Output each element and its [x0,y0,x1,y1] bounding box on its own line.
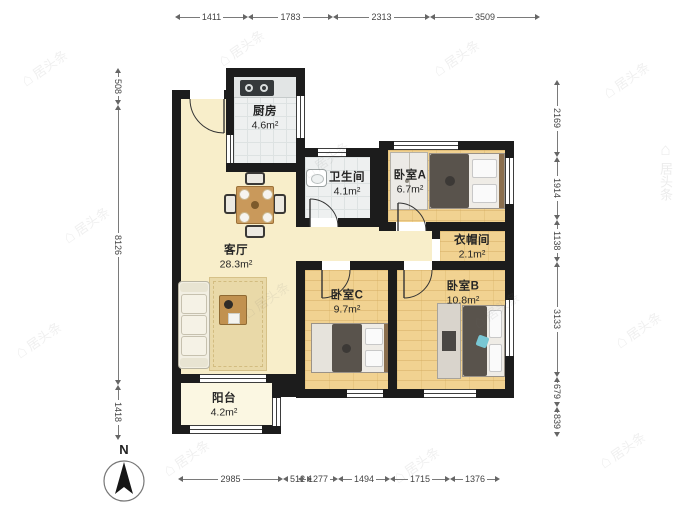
wall-segment [350,261,404,270]
kettle [224,300,233,309]
dim-top-1: 1783 [248,11,333,23]
dim-right-1: 1914 [551,157,563,220]
dim-bottom-5: 1376 [450,473,500,485]
hallway-floor [296,227,440,261]
burner [260,84,268,92]
watermark: ⌂居头条 [429,35,483,81]
room-area: 4.1m² [329,186,365,198]
dining-chair [245,172,265,185]
room-area: 4.6m² [252,120,279,132]
headboard [499,154,504,208]
pillow [489,344,502,372]
sofa-cushion [181,294,207,314]
room-label-balcony: 阳台 4.2m² [211,390,238,419]
watermark: ⌂居头条 [214,25,268,71]
dim-left-0: 508 [112,68,124,105]
bathroom-door-opening [310,218,338,227]
plate [262,212,273,223]
plate [262,189,273,200]
dim-top-3: 3509 [430,11,540,23]
room-label-bathroom: 卫生间 4.1m² [329,169,365,198]
bed-decor [342,344,351,353]
bed-b [462,305,505,377]
room-name: 卫生间 [329,169,365,185]
kitchen-sliding-door [226,135,234,163]
house-icon: ⌂ [612,332,630,352]
room-area: 28.3m² [220,259,253,271]
watermark: ⌂居头条 [656,140,675,201]
burner [245,84,253,92]
cloakroom-opening [432,239,440,261]
blanket-foot [312,324,332,372]
house-icon: ⌂ [657,140,674,159]
pillow [365,328,383,345]
pillow [472,184,497,203]
sofa-arm [180,358,208,367]
wall-segment [226,68,305,77]
dining-table [236,186,274,224]
dim-right-5: 839 [551,407,563,437]
bedroom-a-side-window [505,158,514,204]
floorplan-canvas: ⌂居头条 ⌂居头条 ⌂居头条 ⌂居头条 ⌂居头条 ⌂居头条 ⌂居头条 ⌂居头条 … [0,0,680,510]
room-name: 厨房 [252,103,279,119]
wall-segment [296,389,514,398]
tray [228,313,240,324]
compass-needle-icon [115,462,133,494]
pillow [489,310,502,338]
balcony-side-window [272,398,281,426]
room-label-bedroom-b: 卧室B 10.8m² [447,278,480,307]
room-area: 9.7m² [331,304,364,316]
dim-right-2: 1138 [551,220,563,262]
dim-left-1: 8126 [112,105,124,385]
wall-segment [432,231,440,239]
dim-bottom-2: 1277 [298,473,338,485]
house-icon: ⌂ [600,82,618,102]
dim-left-2: 1418 [112,385,124,440]
room-name: 阳台 [211,390,238,406]
washbasin [306,169,327,187]
coffee-table [219,295,247,325]
room-label-kitchen: 厨房 4.6m² [252,103,279,132]
balcony-sliding-door [200,374,266,383]
wall-segment [296,148,305,227]
bedroom-b-side-window [505,300,514,356]
wall-segment [226,163,305,172]
headboard [384,324,388,372]
kitchen-window [296,96,305,138]
house-icon: ⌂ [215,50,233,70]
basin [311,174,324,184]
house-icon: ⌂ [160,460,178,480]
bed-c [311,323,388,373]
house-icon: ⌂ [596,452,614,472]
pillow [472,159,497,178]
wall-segment [226,68,234,135]
compass-n-label: N [119,442,128,457]
watermark: ⌂居头条 [59,202,113,248]
house-icon: ⌂ [60,227,78,247]
sofa-cushion [181,336,207,356]
bed-decor [445,176,455,186]
room-name: 卧室C [331,287,364,303]
watermark: ⌂居头条 [595,427,649,473]
wall-segment [172,425,190,434]
watermark: ⌂居头条 [17,45,71,91]
wall-segment [379,141,388,231]
dim-bottom-4: 1715 [390,473,450,485]
sofa-cushion [181,315,207,335]
table-centerpiece [251,201,259,209]
wall-segment [388,270,397,398]
pillow [365,350,383,367]
wall-segment [266,374,305,383]
dining-chair [245,225,265,238]
room-name: 卧室B [447,278,480,294]
plate [239,212,250,223]
entry-door-opening [190,90,224,99]
house-icon: ⌂ [18,70,36,90]
tv-panel [442,331,456,351]
dim-bottom-3: 1494 [338,473,390,485]
bathroom-window [318,148,346,157]
dim-bottom-0: 2985 [178,473,283,485]
bedroom-b-window [424,389,476,398]
watermark: ⌂居头条 [11,317,65,363]
room-name: 衣帽间 [454,232,490,248]
room-area: 6.7m² [394,184,427,196]
bedroom-c-window [347,389,383,398]
room-label-bedroom-a: 卧室A 6.7m² [394,167,427,196]
wall-segment [432,261,514,270]
room-label-cloakroom: 衣帽间 2.1m² [454,232,490,261]
stove [240,80,274,96]
room-label-bedroom-c: 卧室C 9.7m² [331,287,364,316]
dim-top-2: 2313 [333,11,430,23]
room-name: 客厅 [220,242,253,258]
room-area: 2.1m² [454,249,490,261]
watermark: ⌂居头条 [611,307,665,353]
room-label-living: 客厅 28.3m² [220,242,253,271]
sofa [178,281,210,369]
dim-right-3: 3133 [551,262,563,377]
dim-right-0: 2169 [551,80,563,157]
wall-segment [370,148,379,227]
watermark: ⌂居头条 [599,57,653,103]
dim-top-0: 1411 [175,11,248,23]
house-icon: ⌂ [12,342,30,362]
dining-chair [273,194,286,214]
room-area: 10.8m² [447,295,480,307]
bedroom-a-door-opening [396,222,426,231]
room-name: 卧室A [394,167,427,183]
bedroom-a-top-window [394,141,458,150]
house-icon: ⌂ [430,60,448,80]
room-area: 4.2m² [211,407,238,419]
wall-segment [224,90,234,99]
bed-a [429,153,505,209]
dim-bottom-1: 512 [283,473,298,485]
sofa-arm [180,283,208,292]
wardrobe [437,303,461,379]
plate [239,189,250,200]
wall-segment [262,425,281,434]
compass: N [94,438,154,508]
balcony-window [190,425,262,434]
dim-right-4: 679 [551,377,563,407]
wall-segment [172,374,200,383]
wall-segment [296,261,322,270]
